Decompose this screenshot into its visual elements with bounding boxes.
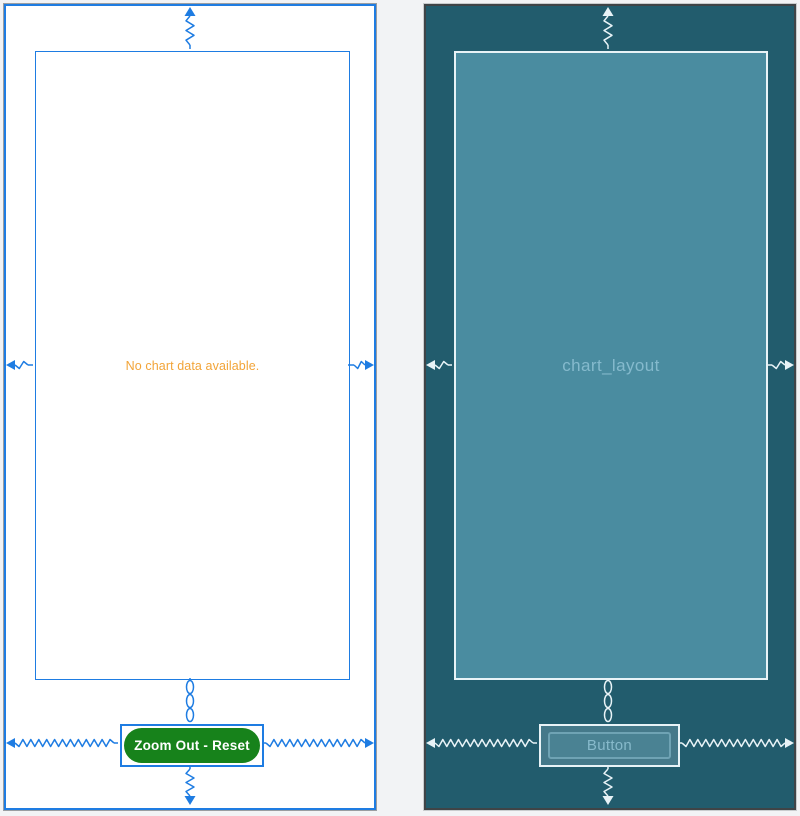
- design-button-right-constraint-spring[interactable]: [262, 738, 374, 748]
- chart-layout-widget-blueprint[interactable]: chart_layout: [454, 51, 768, 680]
- blueprint-button-bottom-constraint-spring[interactable]: [603, 765, 614, 805]
- blueprint-surface[interactable]: chart_layout Button: [424, 4, 796, 810]
- zoom-reset-button[interactable]: Zoom Out - Reset: [124, 728, 260, 763]
- chart-placeholder-text: No chart data available.: [126, 359, 260, 373]
- blueprint-right-constraint-spring[interactable]: [766, 360, 794, 370]
- design-top-constraint-spring[interactable]: [185, 7, 196, 49]
- blueprint-top-constraint-spring[interactable]: [603, 7, 614, 49]
- design-left-constraint-spring[interactable]: [6, 360, 33, 370]
- design-vertical-chain[interactable]: [187, 678, 194, 722]
- design-surface[interactable]: No chart data available. Zoom Out - Rese…: [4, 4, 376, 810]
- button-widget-blueprint[interactable]: Button: [539, 724, 680, 767]
- blueprint-left-constraint-spring[interactable]: [426, 360, 452, 370]
- zoom-reset-button-label: Zoom Out - Reset: [134, 738, 250, 753]
- blueprint-button-left-constraint-spring[interactable]: [426, 738, 537, 748]
- button-inner-outline[interactable]: Button: [548, 732, 671, 759]
- design-right-constraint-spring[interactable]: [348, 360, 374, 370]
- chart-layout-widget-design[interactable]: No chart data available.: [35, 51, 350, 680]
- button-label-blueprint: Button: [587, 737, 632, 754]
- design-button-bottom-constraint-spring[interactable]: [185, 765, 196, 805]
- chart-layout-id-label: chart_layout: [562, 356, 659, 376]
- blueprint-button-right-constraint-spring[interactable]: [678, 738, 794, 748]
- blueprint-vertical-chain[interactable]: [605, 678, 612, 722]
- button-selection-box[interactable]: Zoom Out - Reset: [120, 724, 264, 767]
- design-button-left-constraint-spring[interactable]: [6, 738, 118, 748]
